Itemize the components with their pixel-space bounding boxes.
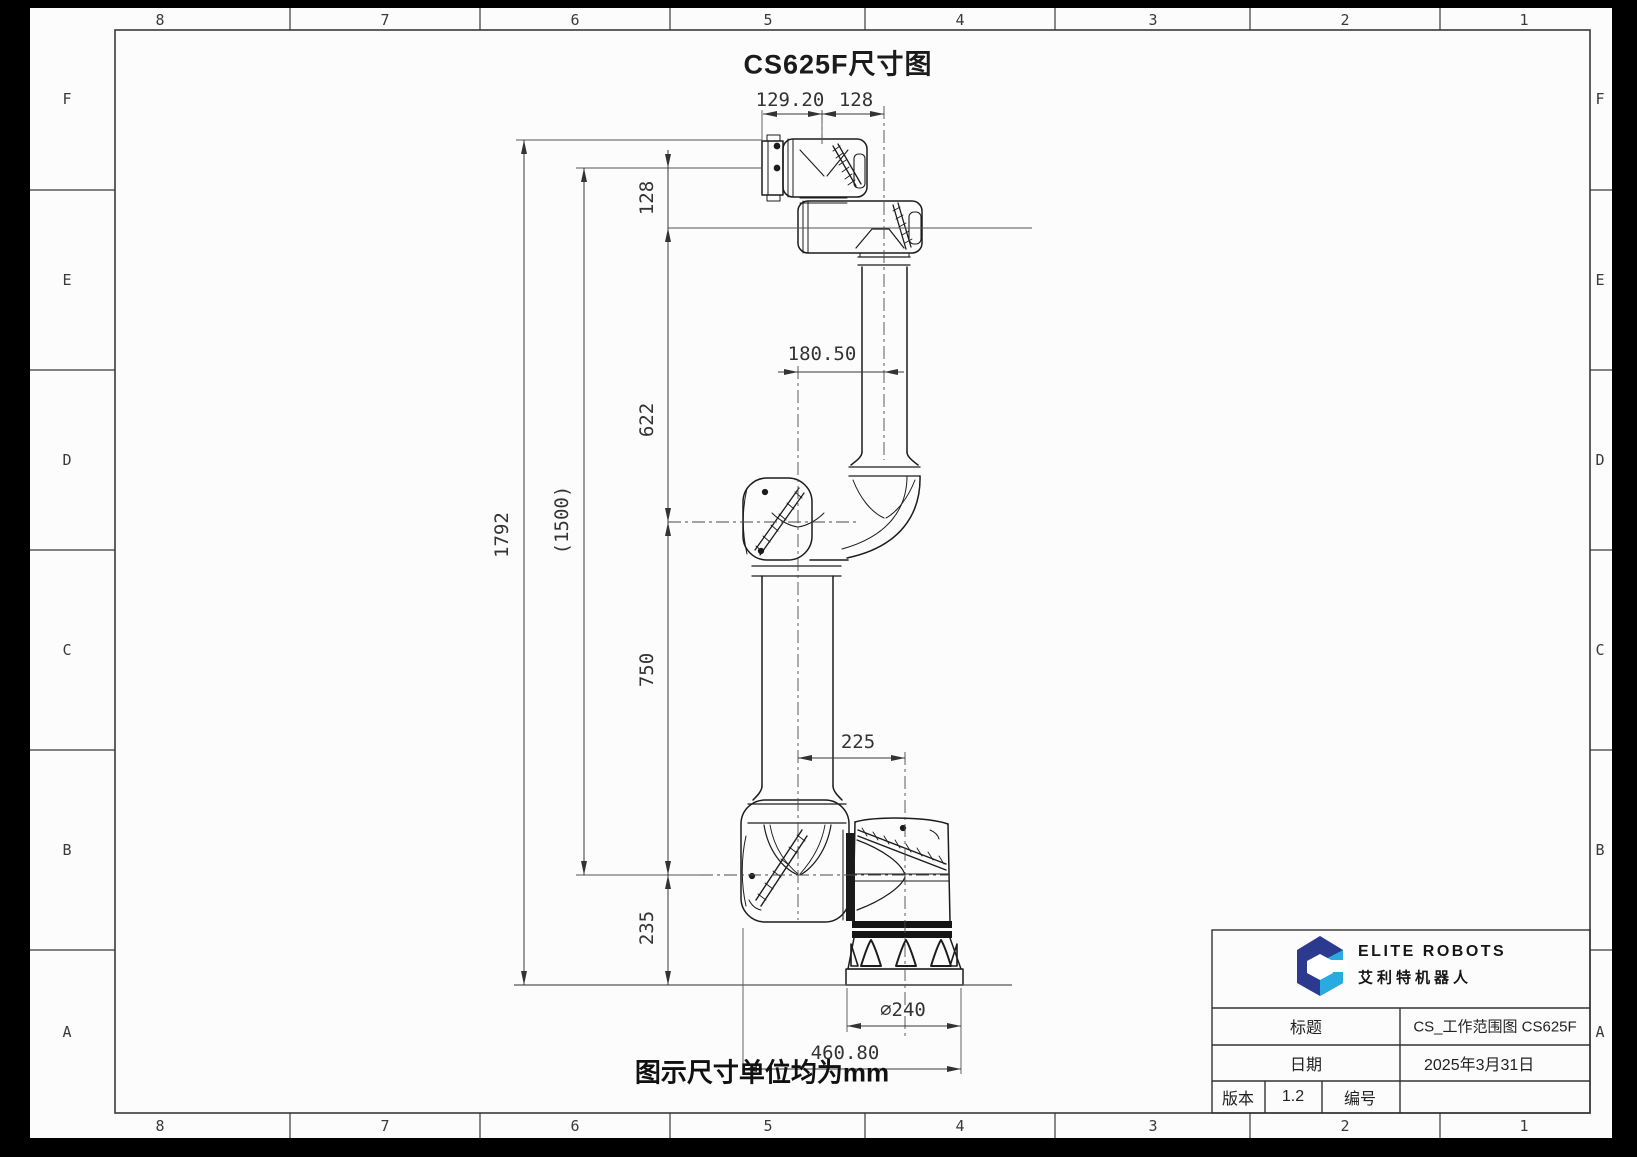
dim-shoulder-offset: 225 bbox=[841, 731, 875, 753]
grid-row-left-c: C bbox=[62, 641, 71, 659]
grid-row-right-e: E bbox=[1595, 271, 1604, 289]
robot-drawing bbox=[741, 135, 963, 985]
grid-col-top-4: 4 bbox=[955, 11, 964, 29]
grid-row-left-f: F bbox=[62, 90, 71, 108]
grid-row-right-a: A bbox=[1595, 1023, 1604, 1041]
dimension-labels: 129.20 128 128 622 750 235 1792 (1500) 1… bbox=[491, 89, 926, 1064]
version-label: 版本 bbox=[1222, 1085, 1254, 1109]
grid-row-left-a: A bbox=[62, 1023, 71, 1041]
grid-row-right-d: D bbox=[1595, 451, 1604, 469]
grid-col-top-3: 3 bbox=[1148, 11, 1157, 29]
grid-col-bottom-2: 2 bbox=[1340, 1117, 1349, 1135]
grid-col-top-8: 8 bbox=[155, 11, 164, 29]
base-joint bbox=[855, 818, 948, 824]
grid-row-right-f: F bbox=[1595, 90, 1604, 108]
grid-row-left-b: B bbox=[62, 841, 71, 859]
dim-elbow-to-shoulder: 750 bbox=[636, 653, 658, 687]
dim-working-height: (1500) bbox=[551, 486, 573, 555]
grid-col-bottom-7: 7 bbox=[380, 1117, 389, 1135]
elite-logo-icon bbox=[1297, 936, 1346, 996]
dim-wrist3-to-forearm: 128 bbox=[839, 89, 873, 111]
page-title: CS625F尺寸图 bbox=[743, 43, 932, 82]
date-value: 2025年3月31日 bbox=[1424, 1051, 1534, 1075]
dim-flange-to-wrist2: 128 bbox=[636, 181, 658, 215]
brand-name-cn: 艾利特机器人 bbox=[1358, 967, 1472, 988]
wrist2-joint bbox=[798, 201, 922, 253]
extension-lines bbox=[514, 110, 1032, 1074]
title-value: CS_工作范围图 CS625F bbox=[1413, 1016, 1576, 1037]
grid-col-bottom-8: 8 bbox=[155, 1117, 164, 1135]
dim-flange-to-wrist3: 129.20 bbox=[756, 89, 825, 111]
grid-col-bottom-4: 4 bbox=[955, 1117, 964, 1135]
dim-elbow-offset: 180.50 bbox=[788, 343, 857, 365]
grid-col-top-1: 1 bbox=[1519, 11, 1528, 29]
units-note: 图示尺寸单位均为mm bbox=[635, 1053, 889, 1090]
upper-arm-link bbox=[762, 576, 833, 786]
grid-col-top-2: 2 bbox=[1340, 11, 1349, 29]
grid-col-top-7: 7 bbox=[380, 11, 389, 29]
grid-col-bottom-6: 6 bbox=[570, 1117, 579, 1135]
title-label: 标题 bbox=[1290, 1014, 1322, 1038]
centerlines bbox=[668, 106, 950, 1040]
number-label: 编号 bbox=[1344, 1085, 1376, 1109]
drawing-page: 129.20 128 128 622 750 235 1792 (1500) 1… bbox=[0, 0, 1637, 1157]
dim-base-diameter: ∅240 bbox=[880, 999, 926, 1021]
dim-shoulder-to-base: 235 bbox=[636, 911, 658, 945]
date-label: 日期 bbox=[1290, 1051, 1322, 1075]
version-value: 1.2 bbox=[1282, 1088, 1304, 1106]
dim-total-height: 1792 bbox=[491, 512, 513, 558]
grid-col-bottom-1: 1 bbox=[1519, 1117, 1528, 1135]
shoulder-joint bbox=[741, 800, 849, 922]
grid-row-left-e: E bbox=[62, 271, 71, 289]
grid-col-top-6: 6 bbox=[570, 11, 579, 29]
forearm-link bbox=[862, 267, 907, 452]
grid-row-left-d: D bbox=[62, 451, 71, 469]
dim-wrist2-to-elbow: 622 bbox=[636, 403, 658, 437]
grid-col-top-5: 5 bbox=[763, 11, 772, 29]
grid-col-bottom-3: 3 bbox=[1148, 1117, 1157, 1135]
brand-name: ELITE ROBOTS bbox=[1358, 943, 1506, 961]
grid-col-bottom-5: 5 bbox=[763, 1117, 772, 1135]
grid-row-right-c: C bbox=[1595, 641, 1604, 659]
grid-row-right-b: B bbox=[1595, 841, 1604, 859]
